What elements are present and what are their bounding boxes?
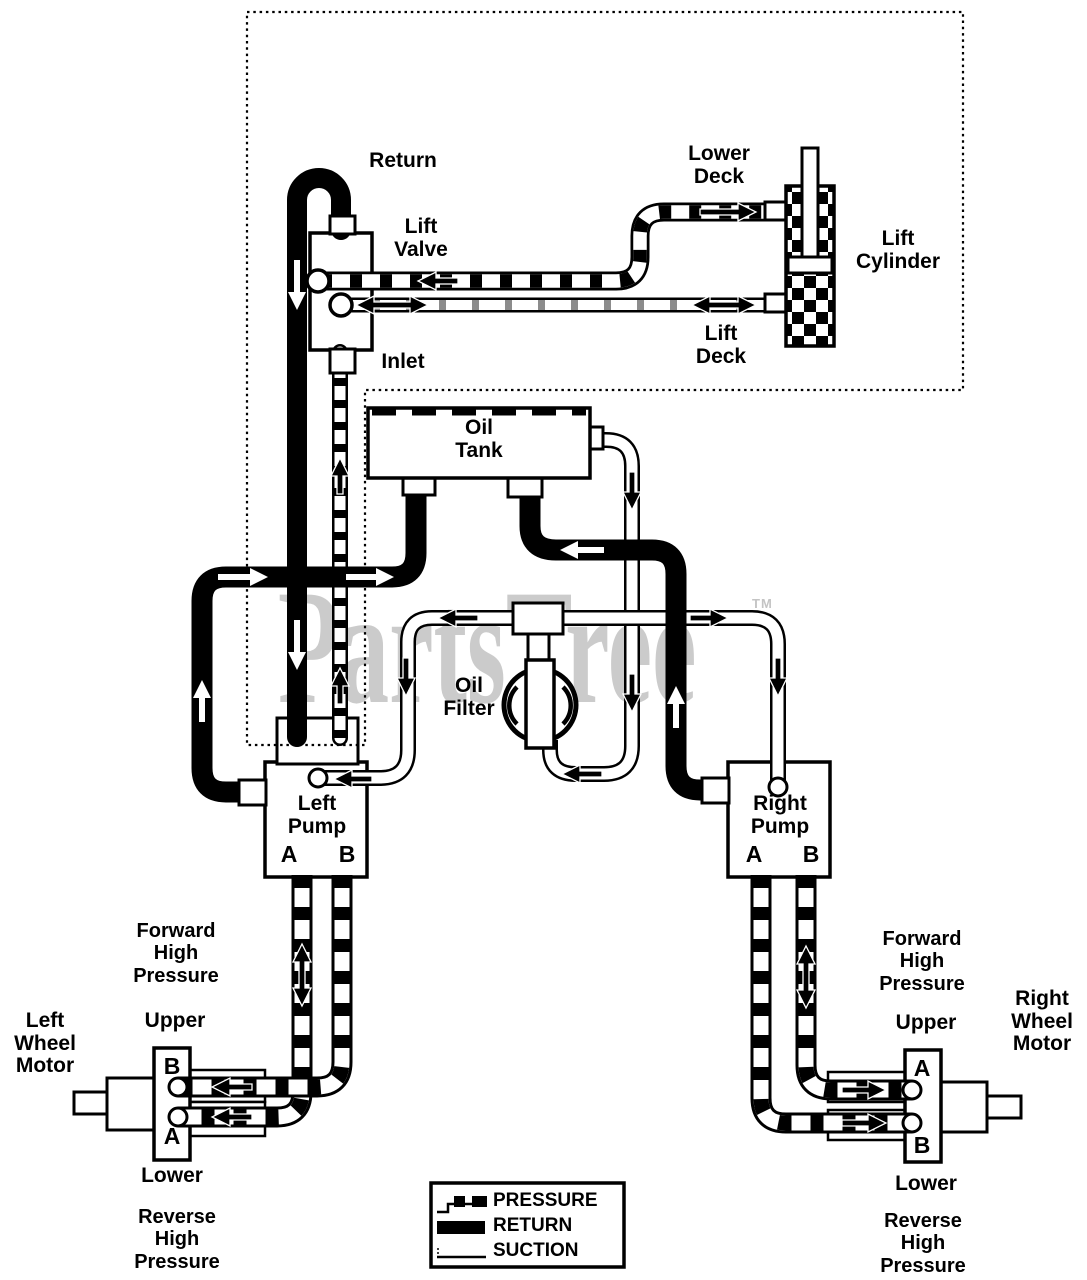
label-lift-cylinder: Lift Cylinder (856, 228, 940, 273)
left-motor-shaft (74, 1092, 108, 1114)
left-pump-side-stub (239, 780, 266, 805)
right-motor-shaft (987, 1096, 1021, 1118)
left-motor-upper-port-cap (169, 1078, 187, 1096)
valve-upper-port-fitting (307, 270, 329, 292)
valve-bottom-stub (330, 349, 355, 373)
filter-tee (513, 603, 563, 634)
label-left-pump: Left Pump (288, 793, 346, 838)
label-right-pump-port-a: A (746, 842, 763, 867)
left-motor-body (107, 1078, 155, 1130)
label-inlet: Inlet (381, 351, 424, 374)
filter-cartridge (526, 660, 554, 748)
label-left-pump-port-b: B (339, 842, 356, 867)
return-flow-arrows (193, 260, 685, 728)
label-lower-deck: Lower Deck (688, 143, 750, 188)
label-lift-deck: Lift Deck (696, 323, 746, 368)
label-lower-right: Lower (895, 1173, 957, 1196)
label-oil-filter: Oil Filter (443, 675, 494, 720)
label-forward-high-pressure-right: Forward High Pressure (879, 928, 965, 995)
label-lower-left: Lower (141, 1165, 203, 1188)
label-reverse-high-pressure-left: Reverse High Pressure (134, 1206, 220, 1273)
label-right-motor-port-a: A (914, 1056, 931, 1081)
components-foreground (247, 12, 963, 748)
label-reverse-high-pressure-right: Reverse High Pressure (880, 1210, 966, 1277)
legend-label-pressure: PRESSURE (493, 1190, 598, 1212)
label-return: Return (369, 150, 437, 173)
cylinder-rod (802, 148, 818, 262)
label-forward-high-pressure-left: Forward High Pressure (133, 920, 219, 987)
tank-middle-stub (508, 477, 542, 497)
label-lift-valve: Lift Valve (394, 216, 448, 261)
label-oil-tank: Oil Tank (455, 417, 502, 462)
label-right-motor-port-b: B (914, 1133, 931, 1158)
label-left-wheel-motor: Left Wheel Motor (14, 1010, 76, 1078)
legend-return-symbol (437, 1221, 485, 1234)
pressure-lower-deck-line (320, 212, 788, 281)
label-right-pump-port-b: B (803, 842, 820, 867)
label-upper-left: Upper (145, 1010, 206, 1033)
label-right-pump: Right Pump (751, 793, 809, 838)
right-motor-upper-port-cap (903, 1081, 921, 1099)
right-pump-side-stub (702, 778, 729, 803)
label-left-pump-port-a: A (281, 842, 298, 867)
lift-cylinder-assembly (786, 148, 834, 346)
valve-lower-port-fitting (330, 294, 352, 316)
label-right-wheel-motor: Right Wheel Motor (1011, 988, 1073, 1056)
hydraulic-flow-diagram: PartsTree TM (0, 0, 1087, 1280)
label-left-motor-port-a: A (164, 1124, 181, 1149)
right-motor-lower-port-cap (903, 1114, 921, 1132)
legend-label-return: RETURN (493, 1215, 572, 1237)
legend-label-suction: SUCTION (493, 1240, 579, 1262)
diagram-artwork (0, 0, 1087, 1280)
dotted-boundary (247, 12, 963, 745)
right-motor-body (941, 1082, 987, 1132)
label-upper-right: Upper (896, 1012, 957, 1035)
left-pump-suction-cap (309, 769, 327, 787)
label-left-motor-port-b: B (164, 1054, 181, 1079)
cylinder-piston (788, 257, 832, 273)
valve-top-stub (330, 216, 355, 234)
